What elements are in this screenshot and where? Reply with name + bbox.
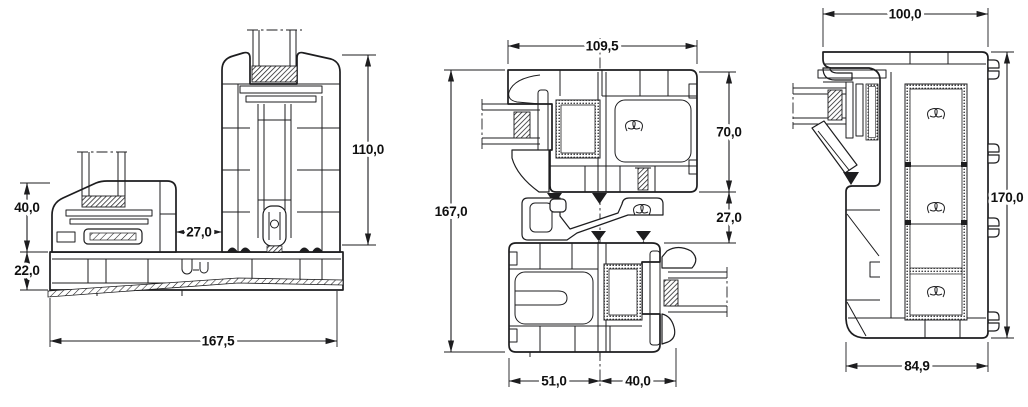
lower-profile	[509, 243, 727, 357]
dim-gap-width: 27,0	[176, 225, 222, 240]
glazing-block	[664, 280, 678, 306]
dim-sash-rail-height: 40,0	[14, 183, 50, 252]
dim-label-27: 27,0	[186, 225, 211, 240]
dim-label-170: 170,0	[991, 190, 1024, 205]
glazing-block	[82, 196, 125, 207]
dim-label-70: 70,0	[716, 125, 741, 140]
sash-glass-unit	[793, 70, 886, 185]
dim-coupling-gap: 27,0	[664, 192, 742, 243]
dim-bottom-width: 84,9	[846, 342, 988, 374]
dim-upper-profile-depth: 70,0	[699, 72, 742, 192]
dim-label-100: 100,0	[889, 7, 922, 22]
glazing-block	[252, 66, 297, 82]
glass-unit	[247, 30, 302, 82]
glass-unit	[482, 99, 540, 149]
dim-overall-width: 167,5	[50, 291, 337, 349]
dim-label-40-mid: 40,0	[625, 374, 650, 389]
dim-lower-widths: 51,0 40,0	[509, 348, 676, 389]
glass-unit	[77, 152, 130, 207]
dim-overall-width-top: 109,5	[508, 39, 697, 65]
dim-top-width: 100,0	[823, 7, 988, 48]
screw	[638, 168, 648, 190]
sill-cross-section: 40,0 22,0 27,0 110,0 167,5	[14, 30, 384, 349]
gasket	[843, 172, 859, 185]
profile-cross-sections-canvas: 40,0 22,0 27,0 110,0 167,5	[0, 0, 1028, 407]
sill-track-profile	[48, 252, 343, 297]
left-sash-profile	[52, 152, 176, 252]
steel-reinforcement	[905, 84, 967, 320]
dim-overall-height: 170,0	[991, 52, 1024, 338]
dim-panel-rail-height: 110,0	[342, 55, 384, 245]
dim-label-84-9: 84,9	[904, 359, 929, 374]
brush-seal	[90, 233, 136, 240]
dim-label-109-5: 109,5	[586, 39, 619, 54]
glazing-block	[828, 90, 842, 120]
dim-label-22: 22,0	[14, 263, 39, 278]
dim-label-27-mid: 27,0	[716, 210, 741, 225]
glazing-block	[514, 112, 530, 138]
dim-label-167-0: 167,0	[435, 204, 468, 219]
glass-unit	[664, 267, 727, 317]
upper-profile	[482, 70, 697, 204]
dim-track-height: 22,0	[14, 252, 48, 290]
interlock-cross-section: 109,5 167,0 70,0 27,0 51,0 40,0	[435, 38, 742, 389]
dim-overall-height: 167,0	[435, 70, 505, 352]
dim-label-51: 51,0	[541, 374, 566, 389]
right-sash-profile	[222, 30, 340, 252]
technical-drawing-page: 40,0 22,0 27,0 110,0 167,5	[0, 0, 1028, 407]
dim-label-167-5: 167,5	[202, 334, 235, 349]
jamb-cross-section: 100,0 170,0 84,9	[793, 7, 1023, 374]
dim-label-40: 40,0	[14, 200, 39, 215]
dim-label-110: 110,0	[352, 142, 384, 157]
